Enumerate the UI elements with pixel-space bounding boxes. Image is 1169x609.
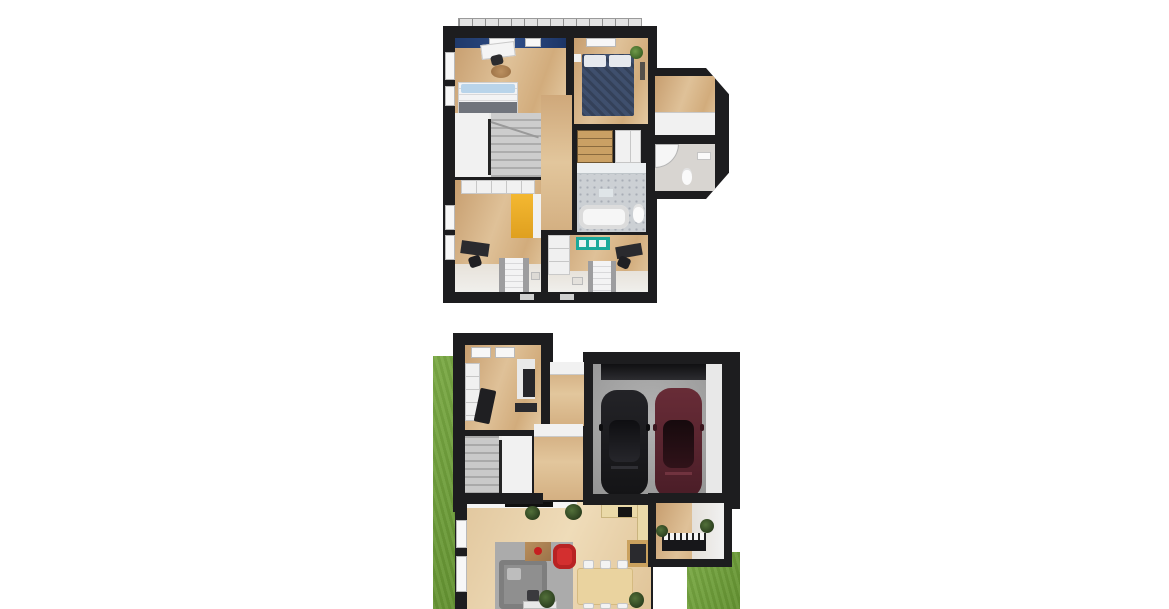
room-utility bbox=[550, 362, 584, 426]
floor-mat bbox=[531, 272, 540, 280]
closet-cabinet bbox=[655, 112, 715, 135]
room-kids-right bbox=[548, 235, 648, 292]
pillow bbox=[584, 55, 606, 67]
bed-pillows bbox=[461, 84, 515, 93]
floor-plan-upper bbox=[443, 15, 743, 310]
potted-plant bbox=[630, 46, 643, 59]
room-entry-hall bbox=[465, 345, 541, 430]
window-left bbox=[445, 86, 455, 106]
dining-chair bbox=[617, 560, 628, 569]
music-room-walls bbox=[648, 493, 732, 567]
car-mirror bbox=[646, 424, 650, 431]
dining-chair bbox=[617, 603, 628, 609]
bed-blanket bbox=[459, 102, 517, 113]
potted-plant bbox=[539, 590, 555, 608]
double-bed bbox=[458, 82, 518, 113]
room-garage bbox=[593, 364, 722, 500]
garage-side-wall bbox=[706, 364, 722, 500]
room-walk-in-closet bbox=[655, 76, 715, 134]
ceiling-light bbox=[495, 347, 515, 358]
piano-keys bbox=[662, 533, 706, 540]
winder-stairs bbox=[465, 436, 499, 500]
roof-window bbox=[586, 38, 616, 47]
wall-art bbox=[640, 62, 645, 80]
window-left bbox=[456, 556, 467, 592]
potted-plant bbox=[629, 592, 644, 608]
dining-table bbox=[577, 568, 633, 605]
single-bed bbox=[588, 261, 616, 292]
garage-door bbox=[601, 364, 706, 380]
coat-rack bbox=[523, 369, 535, 397]
room-hall-ground bbox=[534, 424, 583, 500]
ceiling-light bbox=[471, 347, 491, 358]
hall-cabinet bbox=[534, 424, 583, 437]
bath-mat bbox=[599, 189, 613, 197]
bathtub bbox=[579, 205, 629, 229]
white-wardrobe bbox=[548, 235, 570, 275]
stair-landing bbox=[455, 113, 489, 177]
dining-chair bbox=[600, 560, 611, 569]
desk-chair bbox=[616, 255, 631, 270]
room-music bbox=[656, 503, 724, 559]
room-kids-left bbox=[455, 180, 541, 292]
car-mirror bbox=[599, 424, 603, 431]
teal-shelf bbox=[576, 237, 610, 250]
shelf-side bbox=[533, 194, 541, 238]
car-mirror bbox=[700, 424, 704, 431]
sink bbox=[697, 152, 711, 160]
yellow-cabinet bbox=[511, 194, 533, 238]
piano bbox=[662, 533, 706, 551]
coffee-table bbox=[525, 542, 551, 561]
roof-window bbox=[525, 38, 541, 47]
sofa-pillow bbox=[507, 568, 521, 580]
white-wardrobe bbox=[461, 180, 535, 194]
upper-extension-walls bbox=[647, 68, 729, 199]
room-staircase-ground bbox=[465, 436, 532, 500]
room-bathroom-main bbox=[577, 163, 646, 232]
room-hallway-upper bbox=[541, 95, 572, 230]
hall-cabinet bbox=[615, 130, 641, 163]
floor-mat bbox=[572, 277, 583, 285]
navy-double-bed bbox=[582, 54, 634, 116]
room-bathroom-extension bbox=[655, 144, 715, 191]
window-left bbox=[456, 520, 467, 548]
potted-plant bbox=[525, 506, 540, 520]
corner-shower bbox=[655, 144, 679, 168]
dining-chair bbox=[583, 560, 594, 569]
window-bottom bbox=[560, 294, 574, 300]
sofa-pillow bbox=[527, 590, 539, 601]
stair-wall bbox=[502, 436, 532, 500]
potted-plant bbox=[700, 519, 714, 533]
coat-niche bbox=[517, 359, 535, 399]
window-left bbox=[445, 235, 455, 260]
stair-railing bbox=[499, 440, 502, 500]
pillow bbox=[609, 55, 631, 67]
red-car bbox=[655, 388, 702, 498]
car-mirror bbox=[653, 424, 657, 431]
round-rug bbox=[491, 65, 511, 78]
window-bottom bbox=[520, 294, 534, 300]
window-left bbox=[445, 205, 455, 230]
dining-chair bbox=[583, 603, 594, 609]
room-staircase-upper bbox=[455, 113, 541, 177]
dining-chair bbox=[600, 603, 611, 609]
potted-plant bbox=[565, 504, 582, 520]
floor-plan-ground bbox=[433, 330, 753, 609]
linen-closet-shelves bbox=[577, 130, 613, 163]
single-bed bbox=[499, 258, 529, 292]
bathroom-shelf bbox=[577, 163, 646, 174]
toilet bbox=[633, 207, 644, 223]
red-armchair bbox=[553, 544, 576, 569]
black-car bbox=[601, 390, 648, 496]
nightstand bbox=[574, 54, 581, 62]
red-bowl bbox=[534, 547, 542, 555]
room-open-plan-living bbox=[467, 502, 651, 609]
potted-plant bbox=[656, 525, 668, 537]
console-table bbox=[515, 403, 537, 412]
stair-railing bbox=[488, 119, 491, 175]
utility-cabinet bbox=[550, 362, 584, 375]
window-left bbox=[445, 52, 455, 80]
floor-plan-render bbox=[0, 0, 1169, 609]
room-bedroom-right bbox=[574, 38, 648, 124]
kitchen-tall-cabinet bbox=[627, 540, 649, 567]
wall-below-stairs bbox=[453, 493, 543, 504]
toilet bbox=[682, 170, 692, 185]
black-desk bbox=[460, 240, 490, 257]
cooktop bbox=[618, 507, 632, 517]
